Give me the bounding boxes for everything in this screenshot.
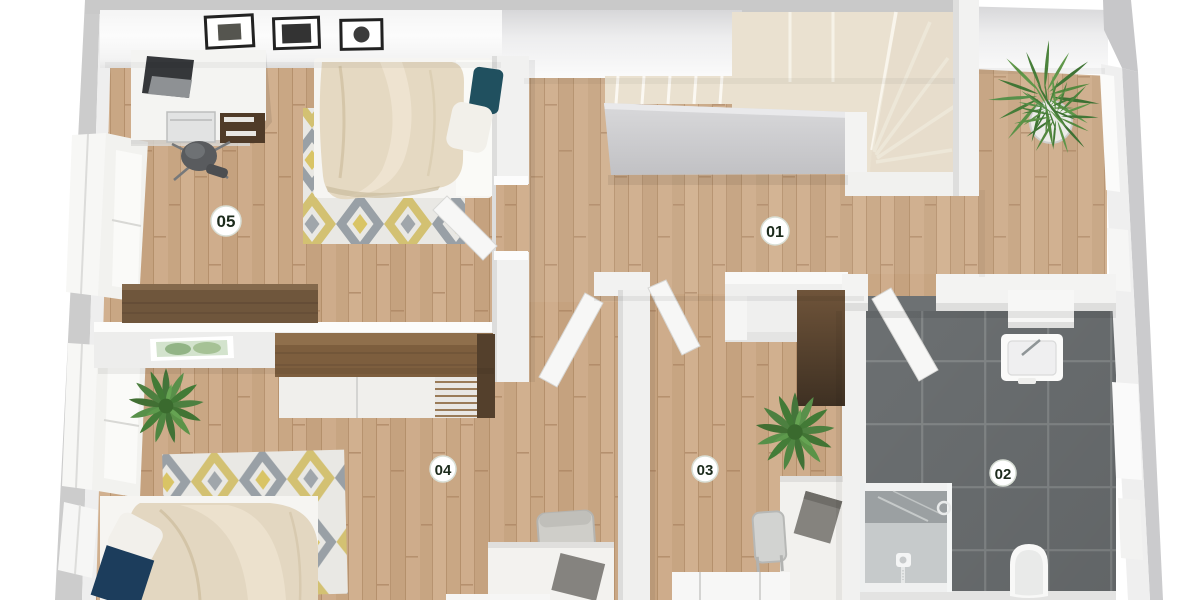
svg-text:05: 05 (217, 212, 236, 231)
svg-text:02: 02 (995, 466, 1012, 483)
svg-text:04: 04 (435, 462, 452, 479)
svg-text:03: 03 (697, 462, 714, 479)
svg-text:01: 01 (766, 224, 784, 241)
